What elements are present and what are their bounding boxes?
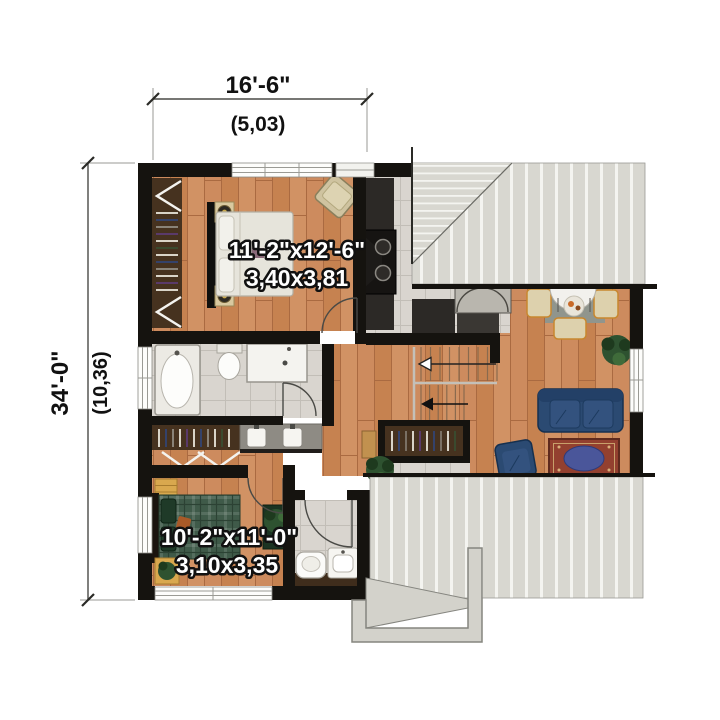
bed2-headboard [152,493,159,563]
window-right-living [630,349,643,412]
window-top-2 [336,163,374,177]
wall-living-right-lower [630,412,643,478]
dining-chair-bottom [554,318,586,339]
floor-plan-page: 11'-2"x12'-6" 3,40x3,81 10'-2"x11'-0" 3,… [0,0,720,720]
wall-bathroom2-top-right [347,490,357,500]
shower-drain [283,361,288,366]
height-dimension-meters: (10,36) [90,351,112,414]
window-left-bedroom2 [138,497,152,553]
wall-kitchen-bottom [366,333,500,345]
bathtub-faucet [175,351,180,356]
bedroom2-dims-m: 3,10x3,35 [176,552,279,578]
dining-chair-right [594,290,618,318]
window-bottom [155,587,272,600]
hall-cabinet [362,431,376,458]
width-dimension-feet: 16'-6" [225,72,290,99]
bed2-pillow-1 [161,499,176,523]
height-dimension-feet: 34'-0" [47,350,74,415]
roof-lower-right [352,473,655,642]
sink-2-faucet [290,424,295,429]
bathroom2-sink-basin [333,555,353,572]
burner-2 [376,266,391,281]
dinner-plate [564,296,584,316]
wall-living-right-upper [630,287,643,349]
roof-upper-right [412,147,657,289]
kitchen-closet [455,286,511,313]
area-rug [549,439,619,478]
wall-bathroom1-bottom [152,416,283,425]
sofa [538,389,623,432]
master-bedroom-dims-ft: 11'-2"x12'-6" [229,237,365,263]
burner-1 [376,240,391,255]
bathtub-basin [161,354,193,408]
wall-bottom-left [138,586,155,600]
shower [247,344,307,382]
wall-bathroom2-top-left [295,490,305,500]
vanity-edge [240,449,322,453]
wall-bedroom1-bottom [138,331,320,344]
master-bedroom-dims-m: 3,40x3,81 [246,265,349,291]
wall-bedroom2-top [138,465,248,478]
hall-closet-interior [385,426,463,456]
entry-tile-strip [388,463,470,474]
sink-1 [247,428,266,447]
window-left-bathroom [138,347,152,409]
bed-pillow-2 [219,258,234,292]
roof-lower-eave [363,473,655,477]
sink-2 [283,428,302,447]
bathroom2-sink-faucet [341,550,345,554]
floor-plan-drawing: 11'-2"x12'-6" 3,40x3,81 10'-2"x11'-0" 3,… [0,0,720,720]
toilet1-tank [217,344,242,353]
shower-faucet [287,347,291,351]
kitchen-counter-lower-1 [412,299,455,333]
plate-food-2 [576,306,581,311]
wall-kitchen-stub [490,333,500,363]
width-dimension-meters: (5,03) [231,113,286,136]
plate-food [568,301,574,307]
bedroom2-dims-ft: 10'-2"x11'-0" [161,524,297,550]
wall-bathroom1-right [322,344,334,426]
roof-upper-eave [412,284,657,289]
toilet1-bowl [218,353,240,380]
toilet2-seat [302,557,320,572]
dining-chair-left [527,289,551,317]
window-top [232,163,332,177]
